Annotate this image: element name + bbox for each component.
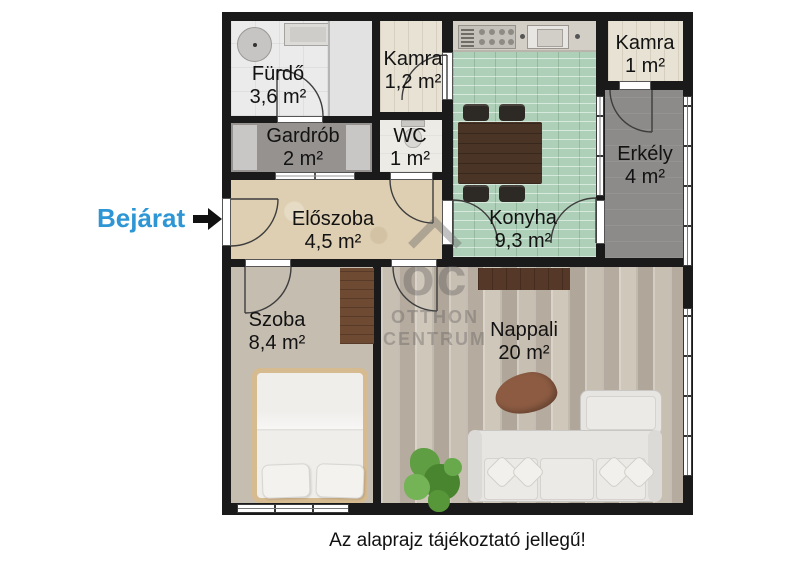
entrance-door-frame: [222, 198, 231, 246]
washing-machine: [237, 27, 272, 62]
dining-chair: [499, 104, 525, 121]
room-area: 1 m²: [390, 148, 430, 171]
room-area: 8,4 m²: [249, 332, 306, 355]
dining-chair: [463, 185, 489, 202]
konyha-door-gap: [442, 200, 453, 245]
room-area: 4 m²: [617, 166, 673, 189]
room-name: Fürdő: [250, 63, 307, 86]
label-eloszoba: Előszoba 4,5 m²: [292, 208, 374, 254]
entrance-arrow-icon: [193, 208, 223, 230]
dining-table: [458, 122, 542, 184]
szoba-door-gap: [245, 259, 291, 267]
szoba-window: [237, 504, 349, 513]
room-name: Nappali: [490, 319, 558, 342]
label-nappali: Nappali 20 m²: [490, 319, 558, 365]
room-name: Erkély: [617, 143, 673, 166]
disclaimer-text: Az alaprajz tájékoztató jellegű!: [222, 530, 693, 552]
entrance-label-group: Bejárat: [97, 203, 223, 234]
room-area: 4,5 m²: [292, 231, 374, 254]
bed-pillow: [261, 463, 310, 499]
room-area: 9,3 m²: [489, 230, 557, 253]
erkely-window: [683, 96, 692, 266]
room-name: WC: [390, 125, 430, 148]
furdo-door-gap: [277, 116, 323, 123]
plant: [428, 490, 450, 512]
label-gardrob: Gardrób 2 m²: [266, 125, 339, 171]
room-name: Előszoba: [292, 208, 374, 231]
plant: [444, 458, 462, 476]
stove-knob: [520, 34, 525, 39]
wc-door-gap: [390, 172, 433, 180]
kitchen-sink: [527, 25, 569, 49]
room-area: 1,2 m²: [384, 71, 443, 94]
sink-knob: [575, 34, 580, 39]
nappali-window: [683, 308, 692, 476]
label-kamra2: Kamra 1 m²: [616, 32, 675, 78]
gardrob-door-gap: [275, 172, 355, 180]
room-name: Kamra: [616, 32, 675, 55]
sofa-armrest: [468, 430, 482, 502]
label-furdo: Fürdő 3,6 m²: [250, 63, 307, 109]
room-name: Kamra: [384, 48, 443, 71]
label-konyha: Konyha 9,3 m²: [489, 207, 557, 253]
label-erkely: Erkély 4 m²: [617, 143, 673, 189]
plant: [404, 474, 430, 500]
floor-plan: oc OTTHON CENTRUM Fürdő 3,6 m² Kamra 1,2…: [222, 12, 693, 515]
gardrob-cabinet-left: [233, 125, 257, 170]
kamra1-door-gap: [442, 52, 453, 100]
tv-cabinet: [478, 268, 570, 290]
entrance-label: Bejárat: [97, 203, 185, 234]
dining-chair: [499, 185, 525, 202]
stove: [458, 25, 516, 49]
room-area: 3,6 m²: [250, 86, 307, 109]
room-name: Konyha: [489, 207, 557, 230]
dining-chair: [463, 104, 489, 121]
room-name: Gardrób: [266, 125, 339, 148]
floor-plan-page: Bejárat: [0, 0, 800, 565]
label-kamra1: Kamra 1,2 m²: [384, 48, 443, 94]
label-szoba: Szoba 8,4 m²: [249, 309, 306, 355]
erkely-door-gap: [596, 200, 605, 244]
room-name: Szoba: [249, 309, 306, 332]
erkely-side-window: [596, 96, 604, 196]
sofa-cushion: [540, 458, 594, 500]
gardrob-cabinet-right: [346, 125, 370, 170]
bed-pillow: [315, 463, 364, 499]
wardrobe: [340, 268, 374, 344]
nappali-door-gap: [391, 259, 437, 267]
shower: [328, 21, 372, 116]
sofa-chaise-cushion: [586, 396, 656, 430]
label-wc: WC 1 m²: [390, 125, 430, 171]
bathroom-sink: [284, 23, 332, 46]
room-area: 20 m²: [490, 342, 558, 365]
room-area: 1 m²: [616, 55, 675, 78]
room-area: 2 m²: [266, 148, 339, 171]
kamra2-door-gap: [619, 81, 651, 90]
